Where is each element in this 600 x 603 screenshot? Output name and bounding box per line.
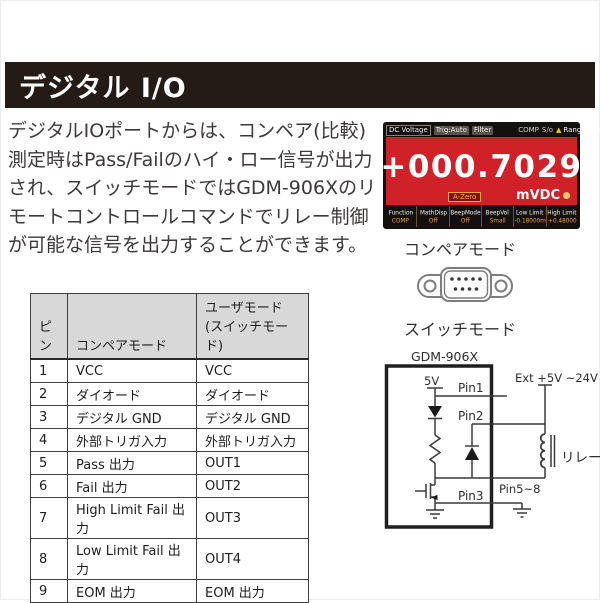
table-row: 1VCCVCC	[31, 359, 309, 383]
softkey-value: Small	[490, 217, 506, 224]
table-cell: VCC	[68, 359, 197, 383]
table-cell: 外部トリガ入力	[197, 429, 309, 452]
softkey-value: -0.18000m	[514, 217, 545, 224]
table-row: 2ダイオードダイオード	[31, 383, 309, 406]
intro-paragraph: デジタルIOポートからは、コンペア(比較) 測定時はPass/Failのハイ・ロ…	[8, 117, 386, 260]
multimeter-display: DC VoltageTrig:AutoFilterCOMPS/o▲Range: …	[383, 122, 580, 229]
header-cell-user: ユーザモード (スイッチモード)	[197, 294, 309, 360]
softkey-value: COMP	[392, 217, 409, 224]
softkey-column: High Limit+0.48000	[546, 206, 578, 227]
header-user-line2: (スイッチモード)	[205, 316, 302, 354]
table-cell: 9	[31, 580, 68, 603]
compare-mode-label: コンペアモード	[404, 236, 516, 260]
table-cell: 4	[31, 429, 68, 452]
circuit-diagram: GDM-906X	[365, 345, 600, 540]
display-status-item: Filter	[472, 126, 493, 135]
table-cell: OUT4	[197, 539, 309, 580]
table-cell: 外部トリガ入力	[68, 429, 197, 452]
unit-text: mVDC	[516, 188, 560, 203]
table-row: 6Fail 出力OUT2	[31, 475, 309, 498]
pin-table: ピン コンペアモード ユーザモード (スイッチモード) 1VCCVCC2ダイオー…	[30, 293, 309, 603]
softkey-label: High Limit	[548, 209, 577, 216]
table-cell: EOM 出力	[197, 580, 309, 603]
table-cell: 3	[31, 406, 68, 429]
table-cell: ダイオード	[197, 383, 309, 406]
display-status-bar: DC VoltageTrig:AutoFilterCOMPS/o▲Range: …	[383, 122, 580, 137]
circuit-device-label: GDM-906X	[411, 349, 478, 364]
switch-mode-label: スイッチモード	[404, 316, 516, 340]
pin5-8-label: Pin5~8	[499, 482, 540, 496]
table-cell: 6	[31, 475, 68, 498]
pin1-label: Pin1	[458, 381, 484, 395]
display-status-item: S/o	[542, 126, 553, 134]
table-cell: デジタル GND	[68, 406, 197, 429]
diode-down-icon	[428, 406, 442, 418]
section-header: デジタル I/O	[5, 62, 595, 108]
table-cell: Pass 出力	[68, 452, 197, 475]
display-status-item: Trig:Auto	[434, 126, 469, 135]
pin3-label: Pin3	[458, 489, 484, 503]
header-cell-pin: ピン	[31, 294, 68, 360]
table-cell: OUT3	[197, 498, 309, 539]
table-row: 3デジタル GNDデジタル GND	[31, 406, 309, 429]
table-cell: 1	[31, 359, 68, 383]
unit-label: mVDC	[516, 188, 570, 203]
pin2-label: Pin2	[458, 409, 484, 423]
diode-up-icon	[465, 447, 479, 460]
table-row: 4外部トリガ入力外部トリガ入力	[31, 429, 309, 452]
softkey-label: BeepMode	[450, 209, 480, 216]
table-cell: ダイオード	[68, 383, 197, 406]
display-status-item: DC Voltage	[386, 125, 431, 136]
softkey-value: +0.48000	[548, 217, 577, 224]
table-row: 7High Limit Fail 出力OUT3	[31, 498, 309, 539]
table-cell: OUT2	[197, 475, 309, 498]
display-status-item: COMP	[518, 126, 539, 134]
table-cell: Fail 出力	[68, 475, 197, 498]
display-status-item: ▲Range: 100mV	[556, 126, 600, 134]
indicator-dot-icon	[563, 192, 570, 199]
table-row: 8Low Limit Fail 出力OUT4	[31, 539, 309, 580]
header-cell-compare: コンペアモード	[68, 294, 197, 360]
table-cell: EOM 出力	[68, 580, 197, 603]
display-screen: +000.7029 A-Zero mVDC	[386, 137, 577, 205]
table-cell: OUT1	[197, 452, 309, 475]
pin-table-header: ピン コンペアモード ユーザモード (スイッチモード)	[31, 294, 309, 360]
table-cell: 5	[31, 452, 68, 475]
table-cell: 8	[31, 539, 68, 580]
table-cell: Low Limit Fail 出力	[68, 539, 197, 580]
supply-5v-label: 5V	[424, 374, 439, 388]
table-cell: High Limit Fail 出力	[68, 498, 197, 539]
softkey-column: BeepVolSmall	[481, 206, 513, 227]
range-warning-icon: ▲	[556, 126, 561, 134]
softkey-column: Low Limit-0.18000m	[513, 206, 545, 227]
table-cell: VCC	[197, 359, 309, 383]
table-row: 9EOM 出力EOM 出力	[31, 580, 309, 603]
softkey-label: Low Limit	[516, 209, 543, 216]
softkey-value: Off	[461, 217, 469, 224]
softkey-label: MathDisp	[419, 209, 446, 216]
table-row: 5Pass 出力OUT1	[31, 452, 309, 475]
ext-supply-label: Ext +5V ~24V	[515, 371, 598, 385]
table-cell: デジタル GND	[197, 406, 309, 429]
page-title: デジタル I/O	[5, 66, 187, 105]
display-softkey-bar: FunctionCOMPMathDispOffBeepModeOffBeepVo…	[383, 205, 580, 229]
db9-connector-icon	[412, 260, 516, 306]
header-user-line1: ユーザモード	[205, 297, 302, 316]
azero-badge: A-Zero	[448, 192, 481, 202]
table-cell: 7	[31, 498, 68, 539]
softkey-label: BeepVol	[486, 209, 509, 216]
table-cell: 2	[31, 383, 68, 406]
softkey-column: FunctionCOMP	[385, 206, 416, 227]
relay-label: リレー	[561, 450, 600, 466]
measurement-reading: +000.7029	[380, 149, 582, 185]
softkey-column: MathDispOff	[416, 206, 448, 227]
softkey-column: BeepModeOff	[449, 206, 481, 227]
softkey-value: Off	[429, 217, 437, 224]
softkey-label: Function	[388, 209, 412, 216]
pin-table-body: 1VCCVCC2ダイオードダイオード3デジタル GNDデジタル GND4外部トリ…	[31, 359, 309, 603]
